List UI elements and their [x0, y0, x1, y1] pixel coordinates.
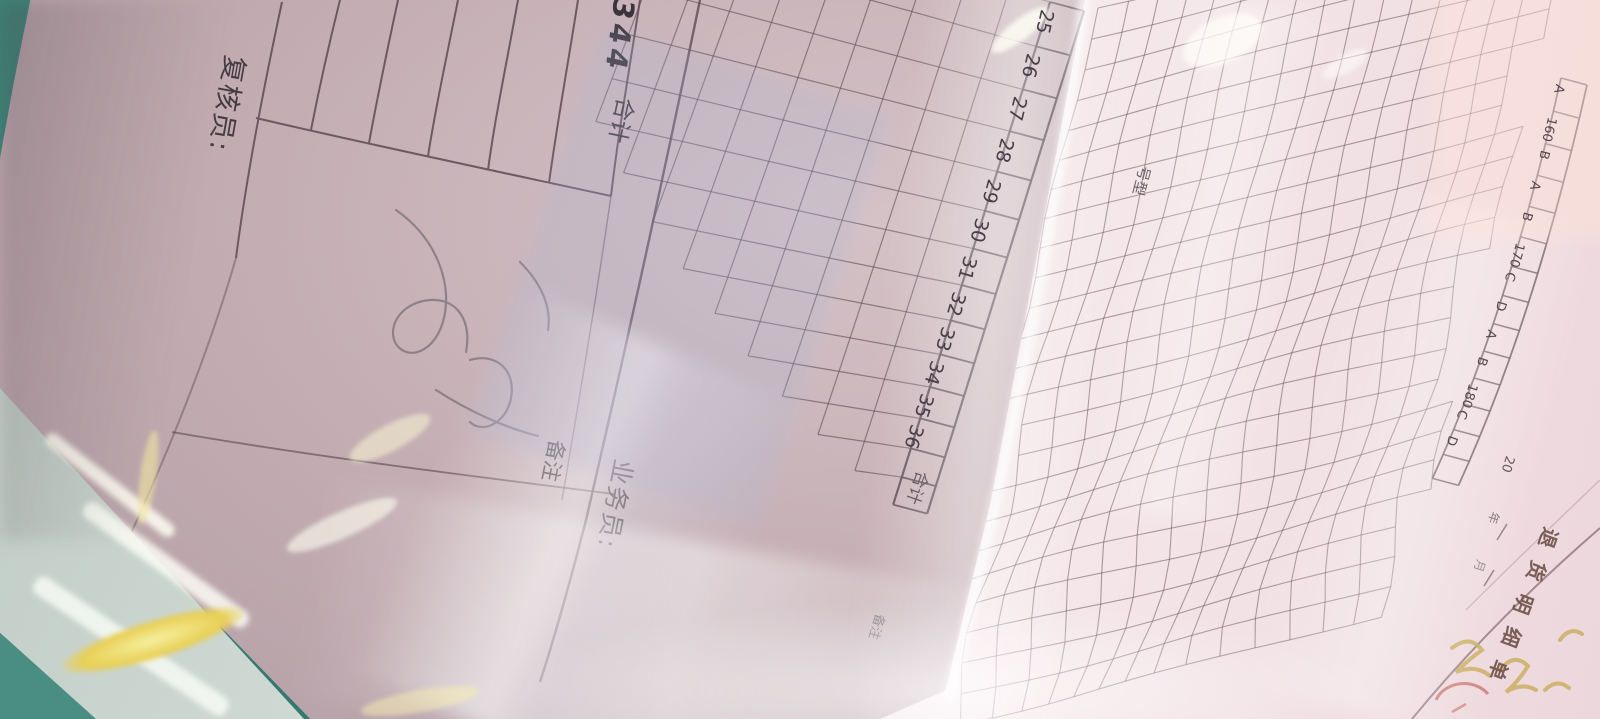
size-cell-label: 31 — [954, 253, 979, 281]
size-cell-label: 25 — [1032, 8, 1056, 36]
size-cell-label: 26 — [1018, 52, 1042, 80]
size-cell-label: 30 — [966, 216, 991, 244]
size-cell-label: 29 — [979, 177, 1004, 205]
handwritten-total: 344 — [600, 0, 638, 77]
size-cell-label: 32 — [943, 290, 968, 319]
size-cell-label: 28 — [991, 136, 1015, 164]
size-cell-label: 27 — [1005, 95, 1029, 123]
photo-of-return-form-in-plastic-bag: 复核员: 业务员: 合计 备注 344 号型 合计 备注 20 年 月 2526… — [0, 0, 1600, 719]
